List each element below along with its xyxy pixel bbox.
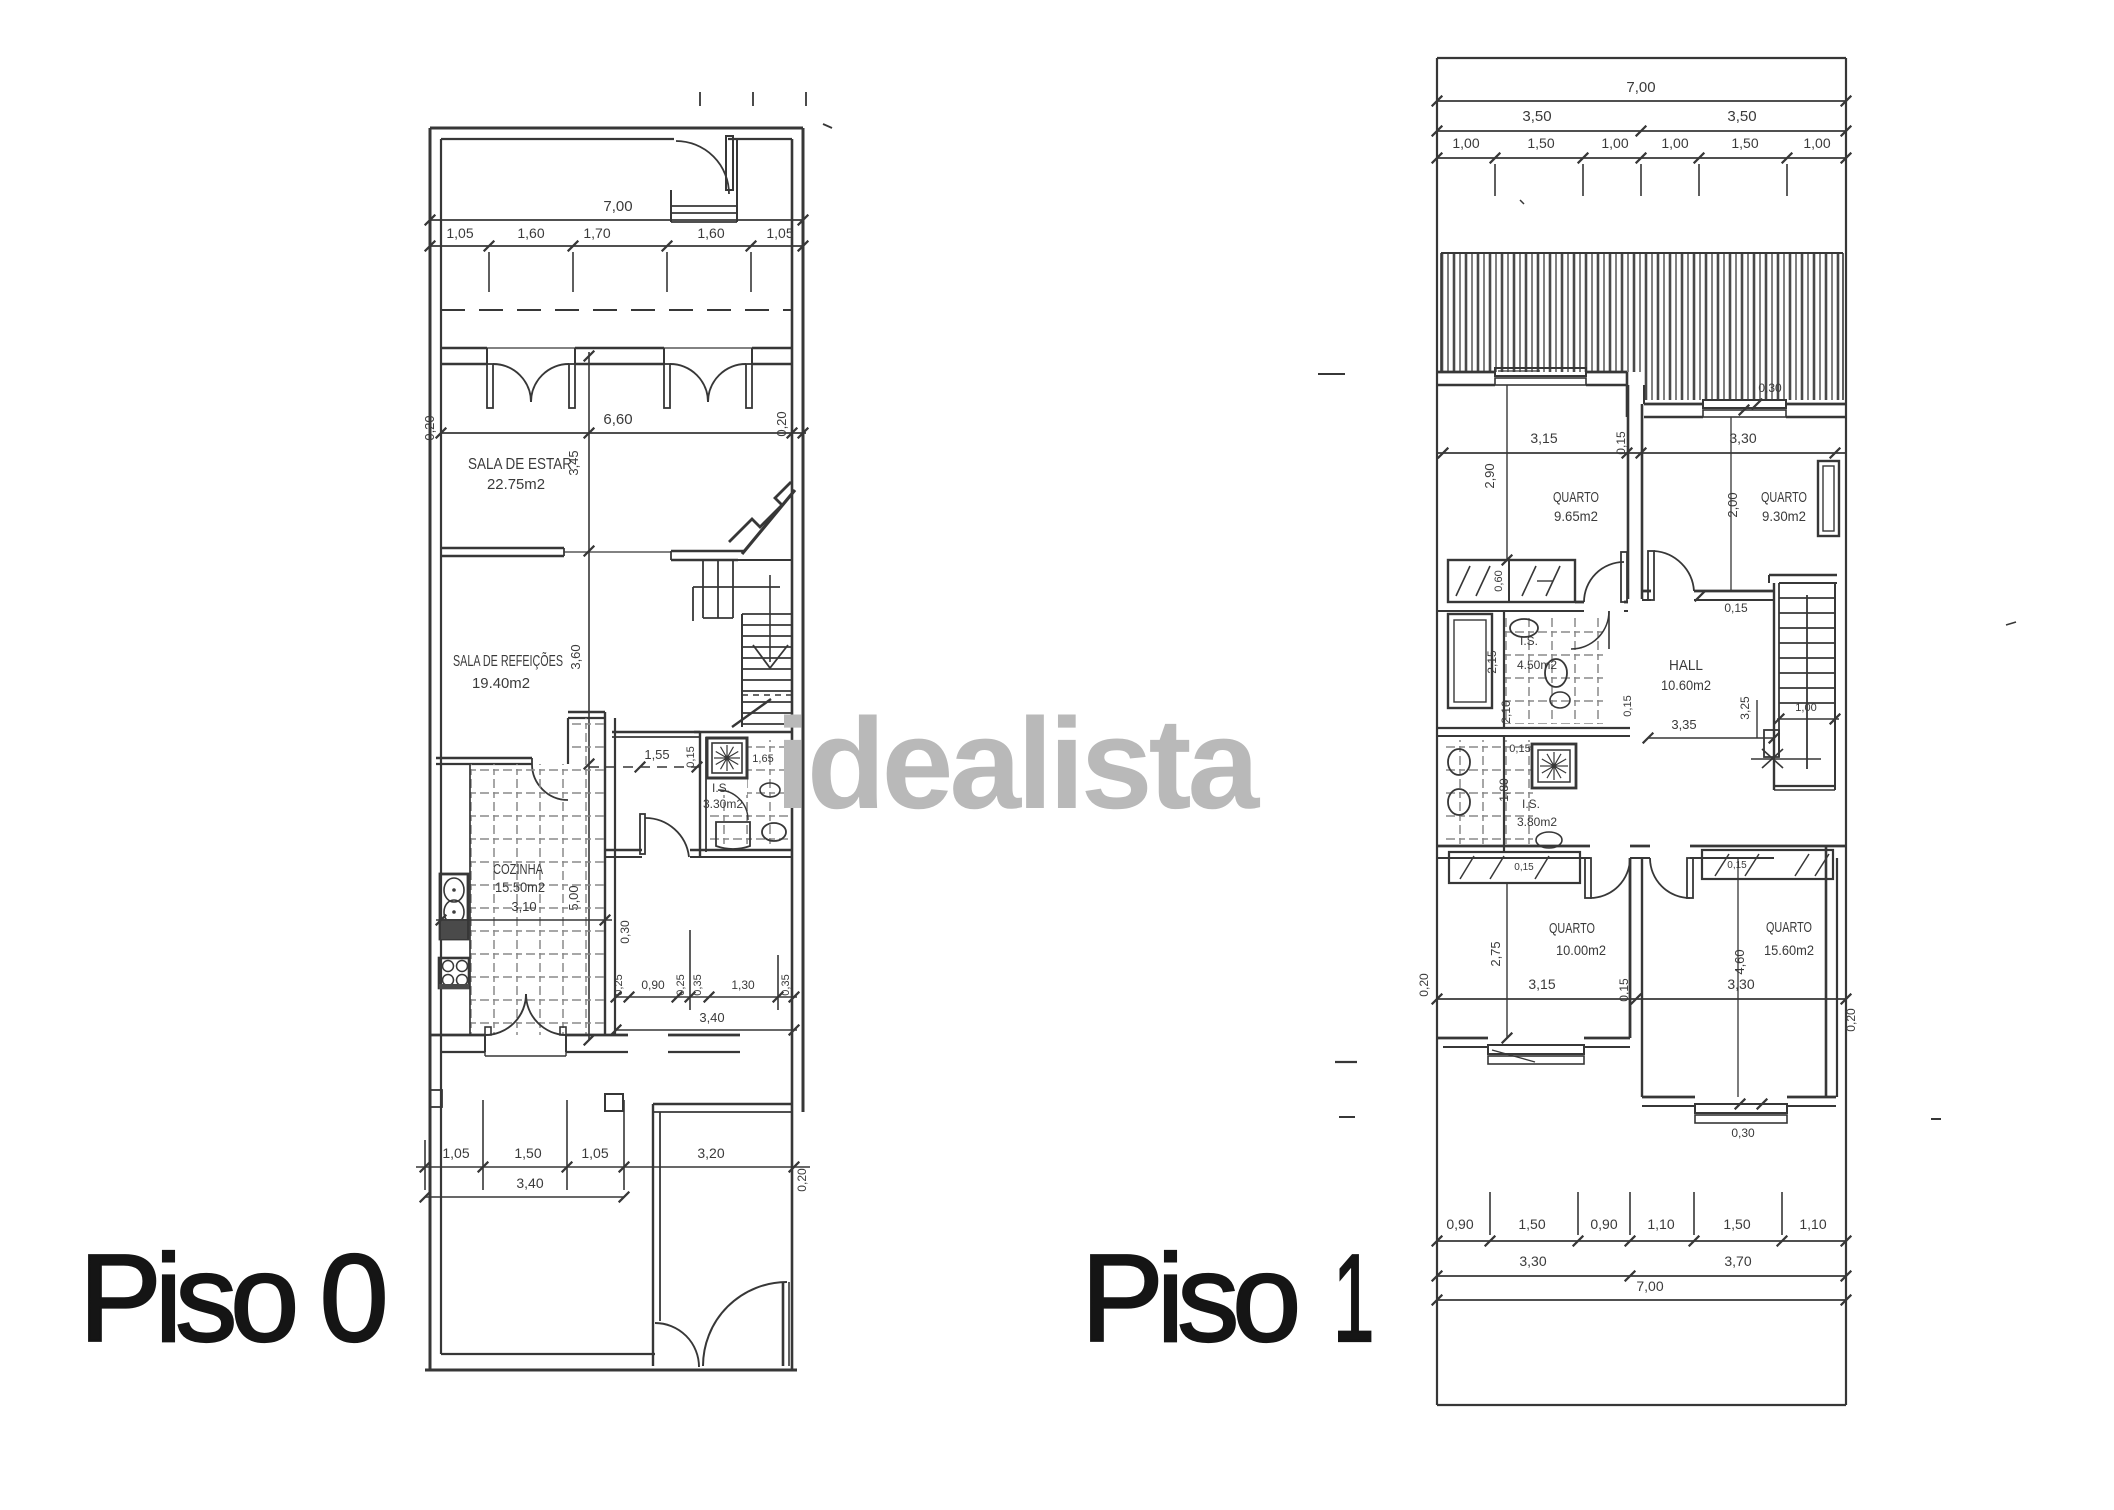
svg-text:0,30: 0,30	[1758, 381, 1782, 395]
svg-text:QUARTO: QUARTO	[1766, 919, 1812, 936]
svg-text:1,30: 1,30	[731, 978, 755, 992]
svg-text:QUARTO: QUARTO	[1761, 489, 1807, 506]
svg-text:0,15: 0,15	[1724, 601, 1748, 615]
svg-text:7,00: 7,00	[1636, 1278, 1663, 1294]
svg-text:15.60m2: 15.60m2	[1764, 942, 1814, 958]
svg-text:3,25: 3,25	[1738, 696, 1752, 720]
svg-text:1,65: 1,65	[752, 753, 773, 765]
svg-text:1,60: 1,60	[697, 225, 724, 241]
svg-text:3,30: 3,30	[1729, 430, 1756, 446]
svg-text:1,05: 1,05	[442, 1145, 469, 1161]
svg-text:SALA DE REFEIÇÕES: SALA DE REFEIÇÕES	[453, 653, 563, 670]
svg-text:1,10: 1,10	[1799, 1216, 1826, 1232]
svg-text:10.00m2: 10.00m2	[1556, 942, 1606, 958]
svg-text:I.S.: I.S.	[1522, 797, 1540, 811]
svg-text:3,10: 3,10	[511, 899, 536, 914]
svg-text:0,30: 0,30	[1731, 1126, 1755, 1140]
svg-text:0,35: 0,35	[780, 974, 792, 995]
svg-text:0,15: 0,15	[1727, 860, 1747, 871]
svg-text:I.S.: I.S.	[1520, 634, 1538, 648]
svg-text:1,70: 1,70	[583, 225, 610, 241]
svg-text:3,50: 3,50	[1522, 108, 1551, 125]
svg-text:3,15: 3,15	[1528, 976, 1555, 992]
svg-text:1,00: 1,00	[1803, 135, 1830, 151]
svg-text:1,00: 1,00	[1795, 702, 1816, 714]
svg-text:6,60: 6,60	[603, 411, 632, 428]
svg-text:0,90: 0,90	[641, 978, 665, 992]
svg-text:3,40: 3,40	[699, 1010, 724, 1025]
svg-text:0,20: 0,20	[795, 1168, 809, 1192]
svg-text:QUARTO: QUARTO	[1549, 920, 1595, 937]
svg-text:QUARTO: QUARTO	[1553, 489, 1599, 506]
svg-text:0,25: 0,25	[613, 974, 625, 995]
svg-text:3,30: 3,30	[1727, 976, 1754, 992]
svg-text:10.60m2: 10.60m2	[1661, 677, 1711, 693]
svg-text:0,15: 0,15	[685, 746, 697, 767]
svg-text:0,15: 0,15	[1622, 695, 1634, 716]
svg-text:1,50: 1,50	[1731, 135, 1758, 151]
svg-text:3,60: 3,60	[568, 644, 583, 669]
svg-text:0,20: 0,20	[1844, 1008, 1858, 1032]
svg-text:4,60: 4,60	[1732, 949, 1747, 974]
svg-text:0,30: 0,30	[618, 920, 632, 944]
svg-text:1,55: 1,55	[644, 747, 669, 762]
svg-text:HALL: HALL	[1669, 657, 1703, 674]
svg-text:2,90: 2,90	[1482, 463, 1497, 488]
svg-text:1,00: 1,00	[1661, 135, 1688, 151]
svg-text:1,50: 1,50	[1723, 1216, 1750, 1232]
svg-text:3,35: 3,35	[1671, 717, 1696, 732]
svg-text:3,20: 3,20	[697, 1145, 724, 1161]
svg-text:2,10: 2,10	[1499, 700, 1513, 724]
svg-text:1,60: 1,60	[517, 225, 544, 241]
svg-text:0,90: 0,90	[1590, 1216, 1617, 1232]
svg-text:2,75: 2,75	[1488, 941, 1503, 966]
svg-text:3.80m2: 3.80m2	[1517, 815, 1557, 829]
svg-text:9.30m2: 9.30m2	[1762, 508, 1806, 524]
svg-text:1,50: 1,50	[514, 1145, 541, 1161]
svg-text:3,30: 3,30	[1519, 1253, 1546, 1269]
svg-text:1,50: 1,50	[1518, 1216, 1545, 1232]
svg-text:3,45: 3,45	[566, 450, 581, 475]
svg-text:2,00: 2,00	[1725, 492, 1740, 517]
svg-text:2,15: 2,15	[1485, 650, 1499, 674]
svg-text:SALA DE ESTAR: SALA DE ESTAR	[468, 456, 572, 473]
svg-text:I.S.: I.S.	[712, 781, 730, 795]
svg-text:22.75m2: 22.75m2	[487, 477, 545, 493]
svg-text:0,15: 0,15	[1514, 862, 1534, 873]
svg-text:0,15: 0,15	[1509, 743, 1530, 755]
svg-text:0,20: 0,20	[422, 415, 437, 440]
svg-text:3,70: 3,70	[1724, 1253, 1751, 1269]
svg-text:9.65m2: 9.65m2	[1554, 508, 1598, 524]
svg-text:3,15: 3,15	[1530, 430, 1557, 446]
svg-text:0,15: 0,15	[1614, 431, 1628, 455]
svg-text:0,25: 0,25	[675, 974, 687, 995]
svg-text:1,05: 1,05	[446, 225, 473, 241]
svg-text:0,90: 0,90	[1446, 1216, 1473, 1232]
svg-text:3.30m2: 3.30m2	[703, 797, 743, 811]
svg-text:3,40: 3,40	[516, 1175, 543, 1191]
svg-text:COZINHA: COZINHA	[493, 861, 543, 878]
svg-text:0,60: 0,60	[1493, 570, 1505, 591]
svg-text:19.40m2: 19.40m2	[472, 676, 530, 692]
svg-text:1,10: 1,10	[1647, 1216, 1674, 1232]
svg-text:0,20: 0,20	[1417, 973, 1431, 997]
svg-text:1,00: 1,00	[1452, 135, 1479, 151]
svg-text:15.50m2: 15.50m2	[495, 879, 545, 895]
svg-text:7,00: 7,00	[603, 198, 632, 215]
svg-text:1,05: 1,05	[581, 1145, 608, 1161]
svg-text:0,15: 0,15	[1617, 978, 1631, 1002]
svg-text:0,35: 0,35	[692, 974, 704, 995]
svg-text:1,80: 1,80	[1497, 778, 1511, 802]
svg-text:3,50: 3,50	[1727, 108, 1756, 125]
svg-text:0,20: 0,20	[774, 411, 789, 436]
svg-text:1,05: 1,05	[766, 225, 793, 241]
svg-text:1,50: 1,50	[1527, 135, 1554, 151]
svg-text:7,00: 7,00	[1626, 79, 1655, 96]
svg-text:1,00: 1,00	[1601, 135, 1628, 151]
